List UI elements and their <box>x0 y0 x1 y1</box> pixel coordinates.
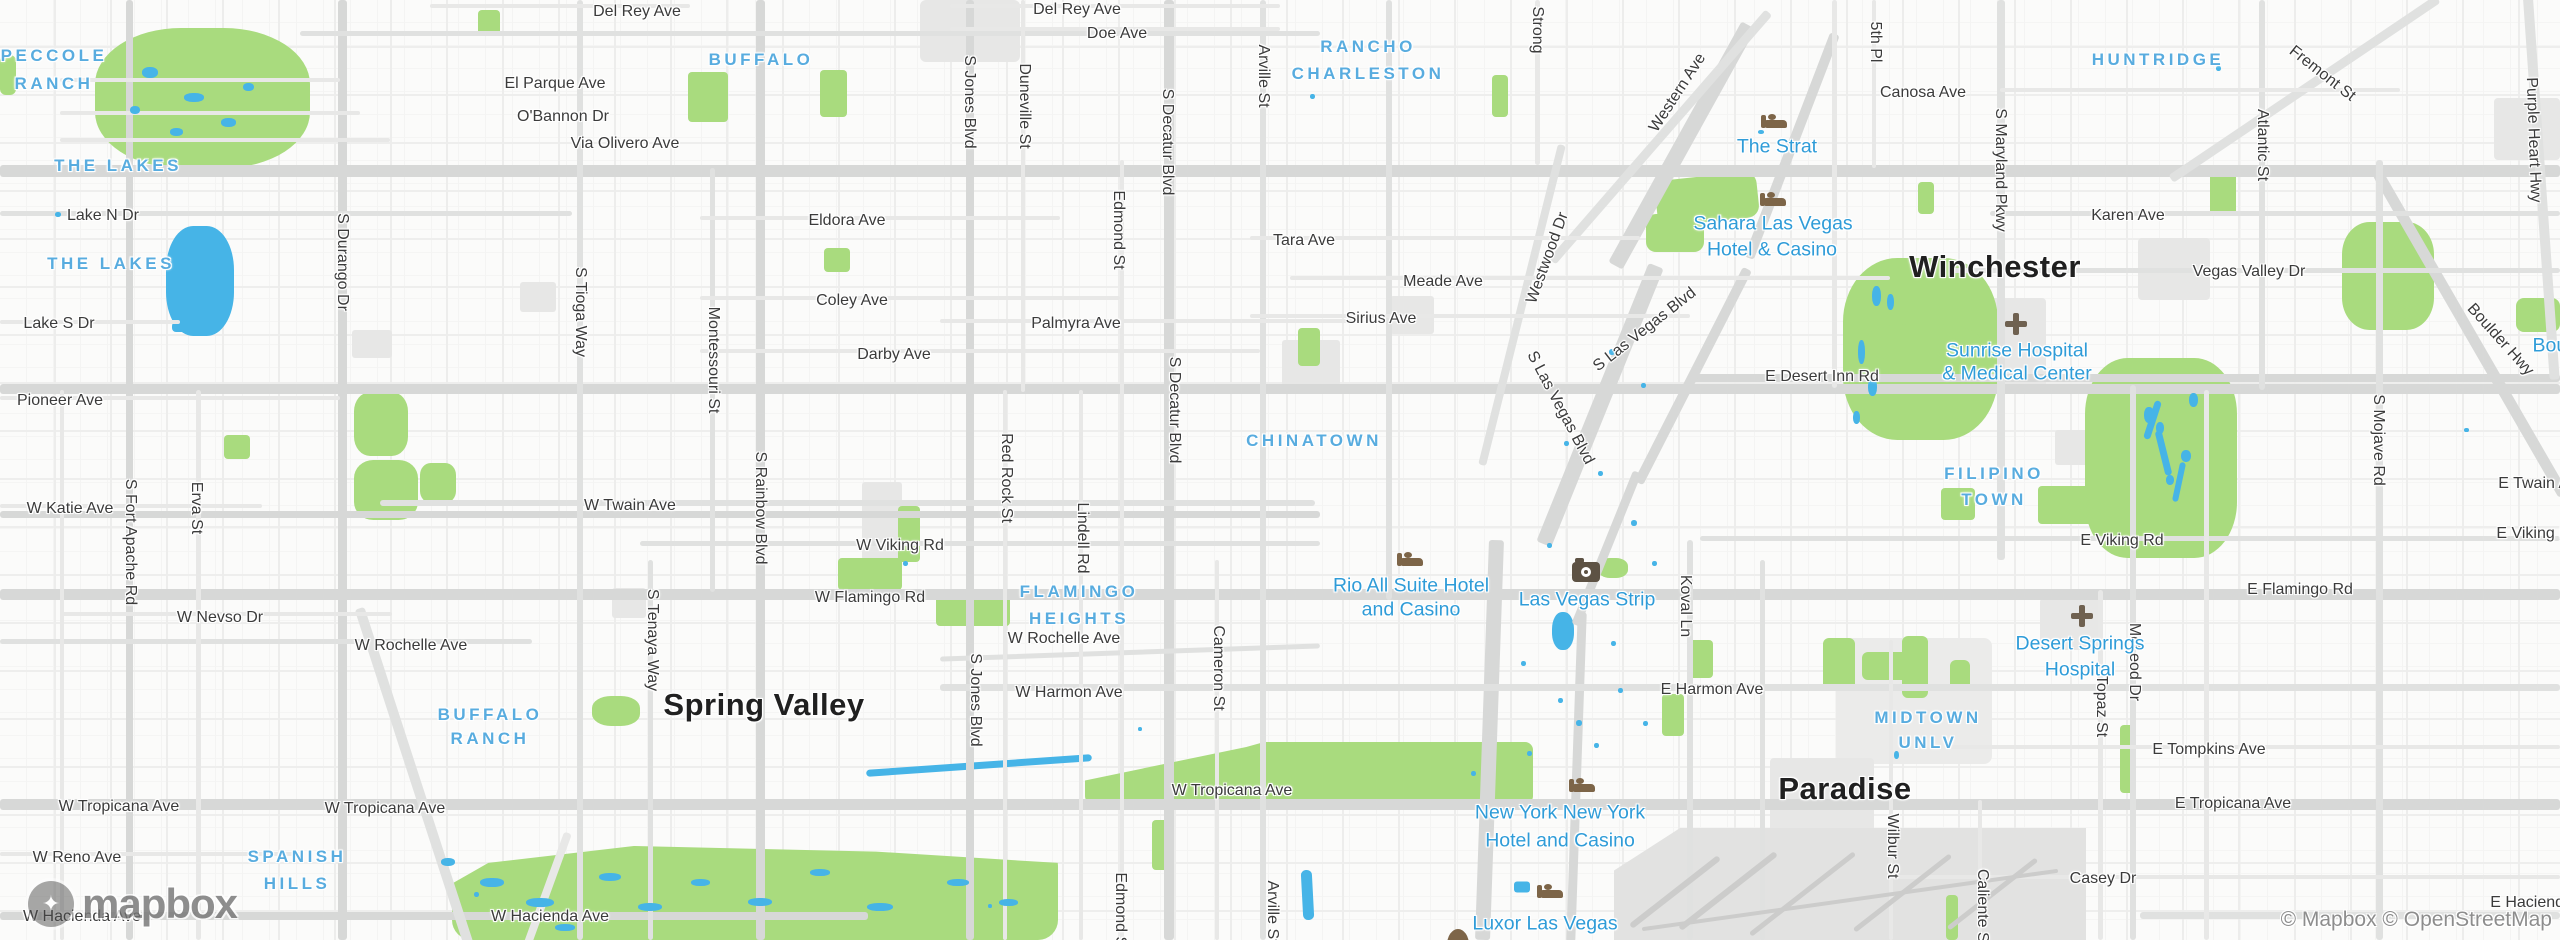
map-label-western-ave: Western Ave <box>1646 50 1710 135</box>
map-label-topaz-st: Topaz St <box>2092 675 2110 737</box>
map-label-ranch: RANCH <box>15 74 94 94</box>
map-label-rancho: RANCHO <box>1320 37 1416 57</box>
map-label-and-casino[interactable]: and Casino <box>1362 599 1461 622</box>
map-label-desert-springs[interactable]: Desert Springs <box>2016 633 2145 656</box>
map-label-s-tenaya-way: S Tenaya Way <box>643 589 661 691</box>
map-label-via-olivero-ave: Via Olivero Ave <box>571 135 680 153</box>
map-label-s-durango-dr: S Durango Dr <box>333 213 351 311</box>
map-label-e-viking-rd: E Viking Rd <box>2496 525 2560 543</box>
map-label-huntridge: HUNTRIDGE <box>2092 50 2225 70</box>
map-label-w-reno-ave: W Reno Ave <box>33 849 122 867</box>
map-label-sirius-ave: Sirius Ave <box>1346 310 1417 328</box>
map-label-the-lakes: THE LAKES <box>47 254 175 274</box>
map-label-meade-ave: Meade Ave <box>1403 273 1483 291</box>
map-label-s-decatur-blvd: S Decatur Blvd <box>1158 89 1176 196</box>
map-label-s-maryland-pkwy: S Maryland Pkwy <box>1991 108 2009 232</box>
mapbox-logo[interactable]: ✦ mapbox <box>28 880 237 928</box>
map-label-buffalo: BUFFALO <box>438 705 543 725</box>
map-label-spanish: SPANISH <box>248 847 347 867</box>
map-label-pioneer-ave: Pioneer Ave <box>17 392 103 410</box>
map-label-e-viking-rd: E Viking Rd <box>2080 532 2163 550</box>
map-label-cameron-st: Cameron St <box>1209 625 1227 710</box>
map-label-heights: HEIGHTS <box>1029 609 1129 629</box>
map-label-medical-center[interactable]: & Medical Center <box>1942 363 2092 386</box>
mapbox-logo-icon: ✦ <box>28 881 74 927</box>
map-label-lake-n-dr: Lake N Dr <box>67 207 139 225</box>
map-label-darby-ave: Darby Ave <box>857 346 931 364</box>
map-label-s-rainbow-blvd: S Rainbow Blvd <box>751 452 769 565</box>
map-label-red-rock-st: Red Rock St <box>997 433 1015 523</box>
map-label-the-lakes: THE LAKES <box>54 156 182 176</box>
map-label-el-parque-ave: El Parque Ave <box>504 75 605 93</box>
map-canvas[interactable]: Spring ValleyWinchesterParadisePECCOLERA… <box>0 0 2560 940</box>
map-label-s-tioga-way: S Tioga Way <box>571 267 589 357</box>
map-label-winchester: Winchester <box>1909 249 2081 285</box>
map-label-hotel-casino[interactable]: Hotel & Casino <box>1707 239 1837 262</box>
map-label-arville-st: Arville St <box>1254 44 1272 107</box>
map-label-doe-ave: Doe Ave <box>1087 25 1147 43</box>
map-label-w-hacienda-ave: W Hacienda Ave <box>491 908 609 926</box>
map-label-s-las-vegas-blvd: S Las Vegas Blvd <box>1523 348 1598 467</box>
map-label-w-tropicana-ave: W Tropicana Ave <box>325 800 446 818</box>
map-label-rio-all-suite-hotel[interactable]: Rio All Suite Hotel <box>1333 575 1489 598</box>
map-label-w-rochelle-ave: W Rochelle Ave <box>355 637 468 655</box>
map-label-ranch: RANCH <box>451 729 530 749</box>
map-label-koval-ln: Koval Ln <box>1676 575 1694 637</box>
map-label-erva-st: Erva St <box>187 482 205 534</box>
map-label-w-viking-rd: W Viking Rd <box>856 537 944 555</box>
map-label-sunrise-hospital[interactable]: Sunrise Hospital <box>1946 340 2088 363</box>
map-label-edmond-st: Edmond St <box>1109 190 1127 269</box>
map-label-e-desert-inn-rd: E Desert Inn Rd <box>1765 368 1879 386</box>
map-label-hotel-and-casino[interactable]: Hotel and Casino <box>1485 830 1635 853</box>
map-label-montessouri-st: Montessouri St <box>704 307 722 414</box>
map-label-boulevard-mall[interactable]: Boulevard Mall <box>2533 335 2560 358</box>
map-label-hospital[interactable]: Hospital <box>2045 659 2115 682</box>
map-label-o-bannon-dr: O'Bannon Dr <box>517 108 609 126</box>
map-label-w-rochelle-ave: W Rochelle Ave <box>1008 630 1121 648</box>
map-label-boulder-hwy: Boulder Hwy <box>2463 300 2537 379</box>
map-label-e-tropicana-ave: E Tropicana Ave <box>2175 795 2291 813</box>
map-label-w-katie-ave: W Katie Ave <box>27 500 114 518</box>
mapbox-wordmark: mapbox <box>82 880 237 928</box>
map-label-the-strat[interactable]: The Strat <box>1737 136 1817 159</box>
map-label-w-flamingo-rd: W Flamingo Rd <box>815 589 925 607</box>
map-label-e-tompkins-ave: E Tompkins Ave <box>2152 741 2265 759</box>
map-label-paradise: Paradise <box>1778 771 1911 807</box>
map-label-s-decatur-blvd: S Decatur Blvd <box>1165 357 1183 464</box>
map-label-e-flamingo-rd: E Flamingo Rd <box>2247 581 2353 599</box>
map-label-e-harmon-ave: E Harmon Ave <box>1661 681 1764 699</box>
map-label-5th-pl: 5th Pl <box>1866 22 1884 63</box>
map-label-palmyra-ave: Palmyra Ave <box>1031 315 1121 333</box>
map-label-w-nevso-dr: W Nevso Dr <box>177 609 263 627</box>
map-label-spring-valley: Spring Valley <box>663 687 864 723</box>
labels-layer: Spring ValleyWinchesterParadisePECCOLERA… <box>0 0 2560 940</box>
map-label-duneville-st: Duneville St <box>1015 63 1033 148</box>
map-label-chinatown: CHINATOWN <box>1246 431 1382 451</box>
map-label-del-rey-ave: Del Rey Ave <box>1033 1 1121 19</box>
map-label-eldora-ave: Eldora Ave <box>808 212 885 230</box>
map-label-coley-ave: Coley Ave <box>816 292 888 310</box>
map-label-del-rey-ave: Del Rey Ave <box>593 3 681 21</box>
map-label-e-twain-ave: E Twain Ave <box>2498 475 2560 493</box>
map-label-new-york-new-york[interactable]: New York New York <box>1475 802 1645 825</box>
map-label-arville-st: Arville St <box>1263 880 1281 940</box>
map-label-w-tropicana-ave: W Tropicana Ave <box>1172 782 1293 800</box>
map-label-westwood-dr: Westwood Dr <box>1523 210 1573 306</box>
map-label-lake-s-dr: Lake S Dr <box>23 315 94 333</box>
map-label-town: TOWN <box>1961 490 2027 510</box>
map-label-s-jones-blvd: S Jones Blvd <box>966 653 984 746</box>
map-label-w-twain-ave: W Twain Ave <box>584 497 676 515</box>
map-label-flamingo: FLAMINGO <box>1020 582 1139 602</box>
map-label-s-fort-apache-rd: S Fort Apache Rd <box>121 479 139 605</box>
map-label-tara-ave: Tara Ave <box>1273 232 1335 250</box>
map-label-s-las-vegas-blvd: S Las Vegas Blvd <box>1590 284 1700 375</box>
map-label-sahara-las-vegas[interactable]: Sahara Las Vegas <box>1693 213 1852 236</box>
map-label-casey-dr: Casey Dr <box>2070 870 2137 888</box>
map-label-w-tropicana-ave: W Tropicana Ave <box>59 798 180 816</box>
map-label-filipino: FILIPINO <box>1944 464 2044 484</box>
map-label-peccole: PECCOLE <box>1 46 108 66</box>
map-label-unlv: UNLV <box>1898 733 1957 753</box>
map-label-caliente-st: Caliente St <box>1973 869 1991 940</box>
map-label-hills: HILLS <box>264 874 331 894</box>
map-label-charleston: CHARLESTON <box>1292 64 1445 84</box>
map-label-s-jones-blvd: S Jones Blvd <box>960 55 978 148</box>
map-label-w-harmon-ave: W Harmon Ave <box>1015 684 1122 702</box>
map-label-vegas-valley-dr: Vegas Valley Dr <box>2193 263 2306 281</box>
map-label-atlantic-st: Atlantic St <box>2253 109 2271 181</box>
map-label-lindell-rd: Lindell Rd <box>1073 502 1091 573</box>
map-label-edmond-st: Edmond St <box>1111 872 1129 940</box>
map-label-las-vegas-strip[interactable]: Las Vegas Strip <box>1519 589 1656 612</box>
map-label-wilbur-st: Wilbur St <box>1883 814 1901 879</box>
map-attribution[interactable]: © Mapbox © OpenStreetMap <box>2281 908 2552 932</box>
map-label-s-mojave-rd: S Mojave Rd <box>2369 394 2387 486</box>
map-label-fremont-st: Fremont St <box>2285 43 2358 106</box>
map-label-canosa-ave: Canosa Ave <box>1880 84 1966 102</box>
map-label-luxor-las-vegas[interactable]: Luxor Las Vegas <box>1472 913 1617 936</box>
map-label-purple-heart-hwy: Purple Heart Hwy <box>2522 77 2544 203</box>
map-label-midtown: MIDTOWN <box>1874 708 1981 728</box>
map-label-buffalo: BUFFALO <box>709 50 814 70</box>
map-label-strong: Strong <box>1528 6 1546 53</box>
map-label-karen-ave: Karen Ave <box>2091 207 2165 225</box>
